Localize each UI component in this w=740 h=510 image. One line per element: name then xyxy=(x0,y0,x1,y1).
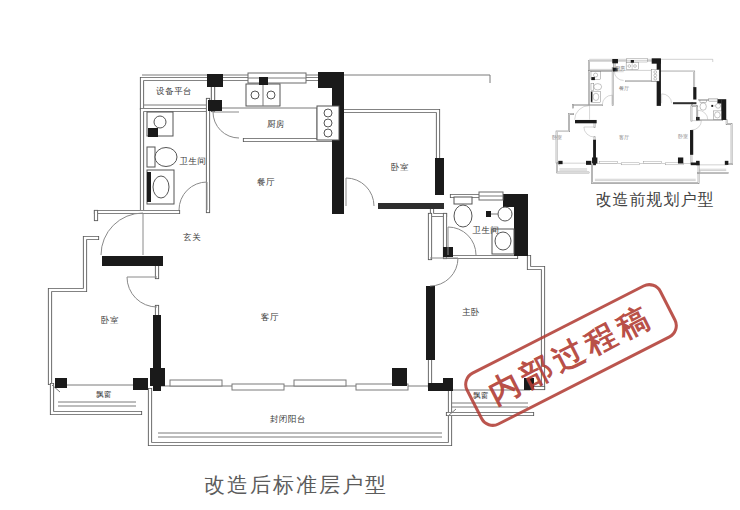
main-plan-caption: 改造后标准层户型 xyxy=(146,471,446,499)
room-label-dining: 餐厅 xyxy=(257,177,275,189)
thin-lines xyxy=(52,108,530,437)
structural-walls xyxy=(55,72,534,391)
room-label-equipment-platform: 设备平台 xyxy=(156,86,192,98)
mini-room-label-bedroom-left: 卧室 xyxy=(552,134,562,140)
mini-room-label-bedroom-right: 卧室 xyxy=(678,133,688,139)
room-label-bathroom-left: 卫生间 xyxy=(180,156,207,168)
mini-floorplan xyxy=(557,58,732,183)
room-label-bedroom-left: 卧室 xyxy=(101,315,119,327)
mini-room-label-kitchen: 厨房 xyxy=(615,65,625,71)
room-label-bedroom-top-right: 卧室 xyxy=(391,162,409,174)
mini-room-label-dining: 餐厅 xyxy=(619,85,629,91)
room-label-bathroom-right: 卫生间 xyxy=(473,225,500,237)
room-label-foyer: 玄关 xyxy=(183,232,201,244)
room-label-bay-window-left: 飘窗 xyxy=(96,390,112,400)
windows xyxy=(248,73,503,200)
room-label-master-bedroom: 主卧 xyxy=(462,307,480,319)
sliding-door-panels xyxy=(170,380,408,390)
mini-room-label-living: 客厅 xyxy=(619,134,629,140)
room-label-kitchen: 厨房 xyxy=(267,119,285,131)
mini-plan-caption: 改造前规划户型 xyxy=(573,190,737,211)
floorplan-page: 设备平台 卫生间 厨房 餐厅 玄关 卧室 卫生间 客厅 卧室 主卧 飘窗 飘窗 … xyxy=(0,0,740,510)
room-label-balcony: 封闭阳台 xyxy=(270,414,306,426)
room-label-living: 客厅 xyxy=(261,312,279,324)
floorplan-drawing xyxy=(0,0,740,510)
